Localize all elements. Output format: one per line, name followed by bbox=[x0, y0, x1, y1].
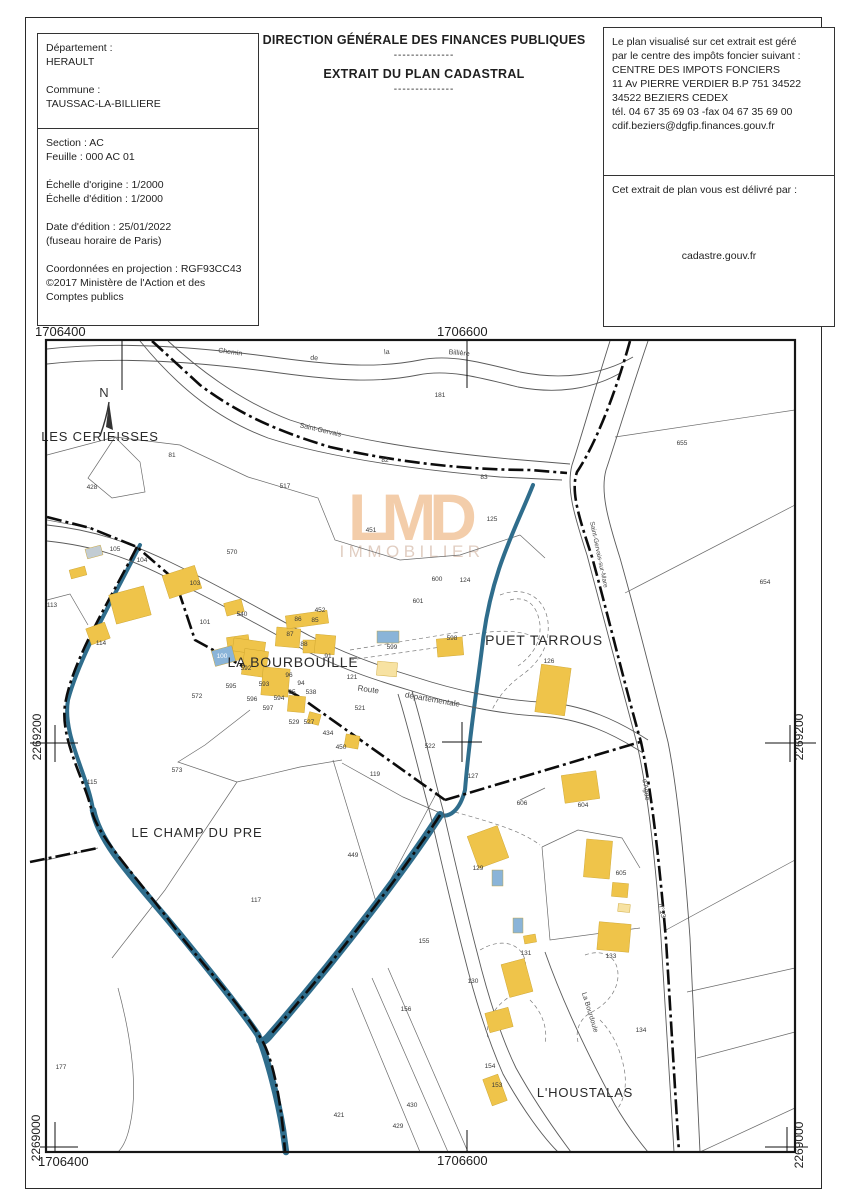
building bbox=[483, 1074, 508, 1106]
building bbox=[523, 934, 536, 944]
parcel-number: 593 bbox=[259, 681, 270, 688]
parcel-number: 94 bbox=[297, 680, 305, 687]
parcel-number: 126 bbox=[544, 658, 555, 665]
place-labels: LES CERIEISSESLA BOURBOUILLEPUET TARROUS… bbox=[41, 429, 633, 1100]
parcel-number: 570 bbox=[227, 549, 238, 556]
parcel-number: 527 bbox=[304, 719, 315, 726]
place-label: L'HOUSTALAS bbox=[537, 1085, 633, 1100]
parcel-number: 100 bbox=[217, 653, 228, 660]
road-label: Billière bbox=[448, 349, 470, 358]
building bbox=[535, 664, 571, 716]
parcel-number: 85 bbox=[311, 617, 319, 624]
building bbox=[314, 634, 336, 655]
parcel-number: 81 bbox=[168, 452, 176, 459]
parcel-number: 153 bbox=[492, 1082, 503, 1089]
parcel-number: 521 bbox=[355, 705, 366, 712]
parcel-number: 114 bbox=[96, 640, 107, 647]
rivers bbox=[67, 485, 533, 1152]
parcel-number: 592 bbox=[241, 665, 252, 672]
place-label: PUET TARROUS bbox=[485, 632, 603, 648]
parcel-number: 121 bbox=[347, 674, 358, 681]
parcel-number: 83 bbox=[480, 474, 488, 481]
building bbox=[485, 1007, 513, 1033]
parcel-number: 605 bbox=[616, 870, 627, 877]
parcel-number: 540 bbox=[237, 611, 248, 618]
map-border bbox=[46, 340, 795, 1152]
parcel-number: 131 bbox=[521, 950, 532, 957]
parcel-number: 91 bbox=[324, 653, 332, 660]
building bbox=[513, 918, 523, 933]
parcel-number: 596 bbox=[247, 696, 258, 703]
parcel-number: 103 bbox=[190, 580, 201, 587]
building bbox=[467, 826, 509, 869]
parcel-number: 449 bbox=[348, 852, 359, 859]
parcel-number: 127 bbox=[468, 773, 479, 780]
watermark-subtitle-text: IMMOBILIER bbox=[339, 542, 484, 561]
parcel-number: 104 bbox=[137, 557, 148, 564]
parcel-number: 434 bbox=[323, 730, 334, 737]
building bbox=[69, 566, 87, 579]
parcel-number: 654 bbox=[760, 579, 771, 586]
grid-coordinate-label: 1706400 bbox=[35, 324, 86, 339]
parcel-number: 601 bbox=[413, 598, 424, 605]
parcel-number: 430 bbox=[407, 1102, 418, 1109]
road-label: Chemin bbox=[218, 347, 243, 357]
place-label: LES CERIEISSES bbox=[41, 429, 158, 444]
building bbox=[618, 903, 631, 912]
parcel-number: 115 bbox=[87, 779, 98, 786]
road-label: la bbox=[384, 349, 390, 356]
building bbox=[597, 922, 631, 953]
watermark: LMDIMMOBILIER bbox=[339, 480, 484, 561]
parcel-number: 95 bbox=[288, 689, 296, 696]
parcel-number: 421 bbox=[334, 1112, 345, 1119]
parcel-number: 573 bbox=[172, 767, 183, 774]
building bbox=[611, 882, 628, 897]
parcel-number: 522 bbox=[425, 743, 436, 750]
parcel-number: 598 bbox=[447, 635, 458, 642]
parcel-number: 572 bbox=[192, 693, 203, 700]
place-label: LE CHAMP DU PRE bbox=[132, 825, 263, 840]
parcel-number: 450 bbox=[336, 744, 347, 751]
parcel-number: 117 bbox=[251, 897, 262, 904]
parcel-number: 125 bbox=[487, 516, 498, 523]
parcel-number: 101 bbox=[200, 619, 211, 626]
parcel-number: 181 bbox=[435, 392, 446, 399]
road-label: Route bbox=[357, 684, 380, 696]
grid-coordinate-label: 2269200 bbox=[30, 713, 44, 760]
road-label: départementale bbox=[404, 690, 461, 709]
parcel-number: 429 bbox=[393, 1123, 404, 1130]
road-label: La Bourdoule bbox=[580, 992, 599, 1034]
grid-coordinate-label: 1706600 bbox=[437, 324, 488, 339]
parcel-number: 655 bbox=[677, 440, 688, 447]
parcel-number: 124 bbox=[460, 577, 471, 584]
building bbox=[377, 631, 399, 643]
building bbox=[561, 771, 600, 804]
parcel-number: 105 bbox=[110, 546, 121, 553]
parcel-number: 606 bbox=[517, 800, 528, 807]
parcel-number: 595 bbox=[226, 683, 237, 690]
road-label: n°13 bbox=[657, 903, 667, 919]
parcel-number: 88 bbox=[300, 641, 308, 648]
parcel-number: 594 bbox=[274, 695, 285, 702]
parcel-number: 517 bbox=[280, 483, 291, 490]
parcel-number: 156 bbox=[401, 1006, 412, 1013]
grid-crosses bbox=[30, 340, 816, 1152]
cadastral-extract-page: { "header": { "org_title": "DIRECTION GÉ… bbox=[0, 0, 847, 1200]
parcel-number: 597 bbox=[263, 705, 274, 712]
parcel-number: 452 bbox=[315, 607, 326, 614]
parcel-number: 133 bbox=[606, 953, 617, 960]
road-label: de bbox=[310, 355, 318, 363]
building bbox=[85, 545, 103, 559]
parcel-number: 599 bbox=[387, 644, 398, 651]
parcel-number: 129 bbox=[473, 865, 484, 872]
parcel-number: 529 bbox=[289, 719, 300, 726]
parcel-number: 113 bbox=[47, 602, 58, 609]
parcel-number: 177 bbox=[56, 1064, 67, 1071]
parcel-number: 82 bbox=[381, 457, 389, 464]
grid-coordinate-label: 1706600 bbox=[437, 1153, 488, 1168]
parcel-number: 134 bbox=[636, 1027, 647, 1034]
road-label: Saint-Gervais bbox=[299, 422, 342, 438]
cadastral-map: LMDIMMOBILIER bbox=[0, 0, 847, 1200]
parcel-number: 155 bbox=[419, 938, 430, 945]
grid-coordinate-label: 1706400 bbox=[38, 1154, 89, 1169]
parcel-number: 451 bbox=[366, 527, 377, 534]
building bbox=[287, 695, 305, 712]
parcel-number: 600 bbox=[432, 576, 443, 583]
building bbox=[583, 839, 612, 879]
parcel-number: 86 bbox=[294, 616, 302, 623]
parcel-number: 538 bbox=[306, 689, 317, 696]
parcel-number: 119 bbox=[370, 771, 381, 778]
parcel-number: 604 bbox=[578, 802, 589, 809]
parcel-number: 130 bbox=[468, 978, 479, 985]
north-label: N bbox=[99, 385, 108, 400]
building bbox=[501, 958, 533, 997]
parcel-number: 428 bbox=[87, 484, 98, 491]
parcel-number: 96 bbox=[285, 672, 293, 679]
roads bbox=[47, 341, 700, 1152]
building bbox=[376, 661, 397, 677]
grid-coordinate-labels: 1706400170660022692002269200226900022690… bbox=[29, 324, 806, 1169]
parcel-number: 87 bbox=[286, 631, 294, 638]
building bbox=[492, 870, 503, 886]
parcel-number: 154 bbox=[485, 1063, 496, 1070]
